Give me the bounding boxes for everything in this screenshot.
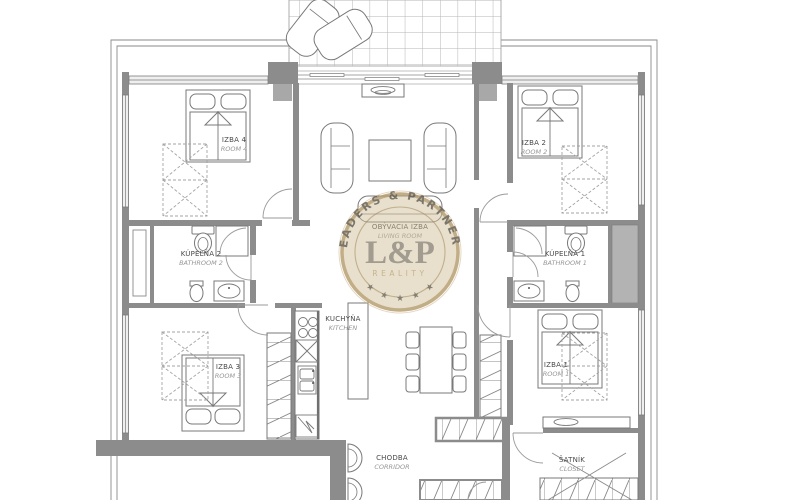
svg-text:★: ★: [396, 294, 404, 304]
watermark-monogram: L&P: [365, 235, 435, 271]
watermark-subtitle: REALITY: [372, 269, 427, 278]
watermark-badge: LEADERS & PARTNERS L&P REALITY ★ ★ ★ ★ ★: [0, 0, 800, 500]
floor-plan-canvas: IZBA 4 ROOM 4 IZBA 2 ROOM 2 OBÝVACIA IZB…: [0, 0, 800, 500]
